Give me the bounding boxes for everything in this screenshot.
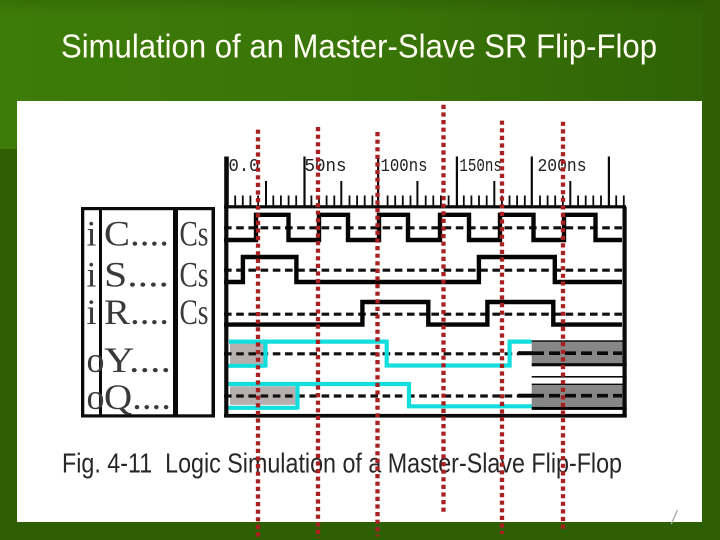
svg-text:Y....: Y.... xyxy=(104,340,171,380)
svg-text:Fig. 4-11 Logic Simulation of: Fig. 4-11 Logic Simulation of a Master-S… xyxy=(62,448,622,479)
svg-text:o: o xyxy=(87,377,105,417)
svg-text:50ns: 50ns xyxy=(305,157,347,177)
svg-text:0.0: 0.0 xyxy=(229,157,260,177)
svg-text:i: i xyxy=(87,214,97,254)
svg-text:Q....: Q.... xyxy=(104,377,171,417)
svg-text:o: o xyxy=(87,340,105,380)
svg-text:Cs: Cs xyxy=(180,214,209,254)
svg-text:S....: S.... xyxy=(104,255,169,295)
svg-text:R....: R.... xyxy=(104,292,169,332)
svg-text:i: i xyxy=(87,292,97,332)
svg-text:Simulation of an Master-Slave: Simulation of an Master-Slave SR Flip-Fl… xyxy=(61,28,657,65)
svg-text:Cs: Cs xyxy=(180,292,209,332)
svg-text:i: i xyxy=(87,255,97,295)
svg-text:100ns: 100ns xyxy=(381,157,428,177)
svg-text:150ns: 150ns xyxy=(459,157,502,177)
svg-text:C....: C.... xyxy=(104,214,169,254)
svg-text:Cs: Cs xyxy=(180,255,209,295)
